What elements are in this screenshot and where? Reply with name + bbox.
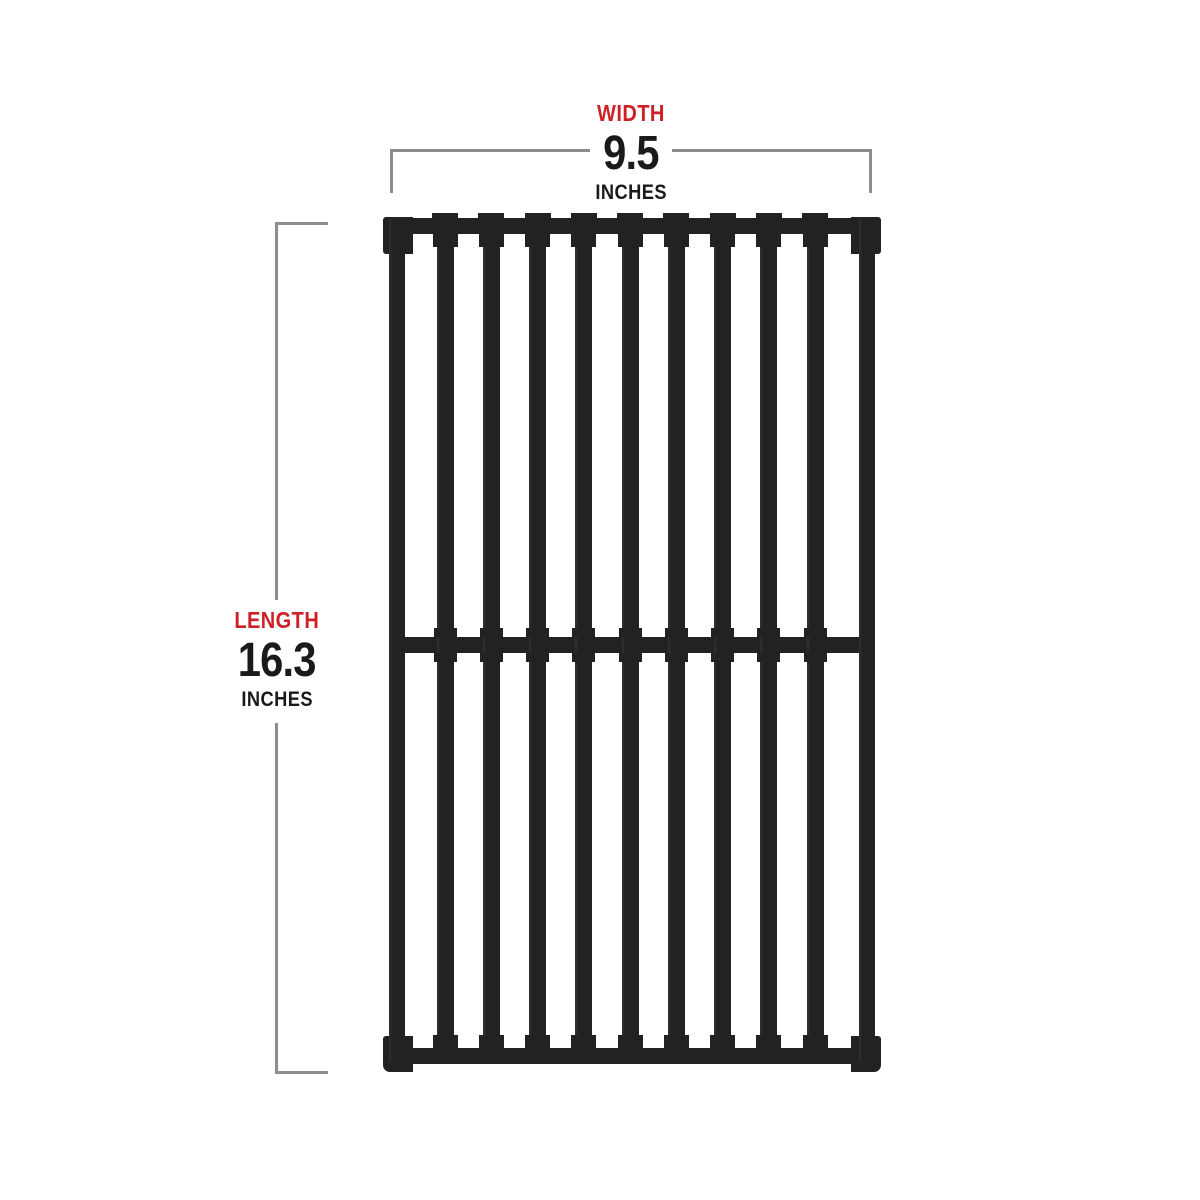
width-value: 9.5 bbox=[590, 130, 672, 178]
grate-bar-mid-cap-upper bbox=[804, 628, 827, 637]
grate-bar-top-tab bbox=[617, 213, 643, 219]
length-value: 16.3 bbox=[223, 637, 330, 685]
grate-bar-mid-cap-upper bbox=[757, 628, 780, 637]
length-value-text: 16.3 bbox=[238, 637, 316, 685]
grate-bar-mid-cap-upper bbox=[665, 628, 688, 637]
grate-bar-top-tab bbox=[756, 213, 782, 219]
width-label: WIDTH 9.5 INCHES bbox=[558, 101, 704, 204]
grate-bar-bottom-cap bbox=[525, 1035, 550, 1048]
grate-bar bbox=[437, 234, 454, 1048]
grate-bar-top-cap bbox=[571, 234, 596, 247]
grate-bar-mid-cap-upper bbox=[619, 628, 642, 637]
grate-bar-mid-cap-lower bbox=[572, 653, 595, 662]
grate-bar-bottom-cap bbox=[710, 1035, 735, 1048]
grate-bar-bottom-cap bbox=[433, 1035, 458, 1048]
grate-bar-top-cap bbox=[710, 234, 735, 247]
grate-bar-mid-cap-lower bbox=[619, 653, 642, 662]
grate-bar-top-cap bbox=[756, 234, 781, 247]
grate-bar-mid-cap-upper bbox=[480, 628, 503, 637]
grate-bar-mid-cap-upper bbox=[526, 628, 549, 637]
grate-bar-top-tab bbox=[571, 213, 597, 219]
grate-frame-bar-left bbox=[389, 218, 405, 1062]
width-unit-text: INCHES bbox=[595, 181, 667, 204]
width-unit: INCHES bbox=[590, 181, 672, 204]
grate-bar-mid-cap-upper bbox=[572, 628, 595, 637]
grate-bar-mid-cap-lower bbox=[757, 653, 780, 662]
grate-bar-bottom-cap bbox=[571, 1035, 596, 1048]
grate-bar-top-cap bbox=[479, 234, 504, 247]
grate-bar-top-tab bbox=[432, 213, 458, 219]
product-dimension-diagram: WIDTH 9.5 INCHES LENGTH 16.3 INCHES bbox=[0, 0, 1200, 1200]
grate-bar-bottom-cap bbox=[803, 1035, 828, 1048]
width-title: WIDTH bbox=[592, 101, 670, 126]
width-value-text: 9.5 bbox=[603, 130, 658, 178]
grate-bar bbox=[483, 234, 500, 1048]
grate-bar-bottom-cap bbox=[756, 1035, 781, 1048]
grate-bar-mid-cap-lower bbox=[434, 653, 457, 662]
length-title-text: LENGTH bbox=[235, 608, 320, 633]
grate-bar-top-tab bbox=[710, 213, 736, 219]
grate-bar bbox=[760, 234, 777, 1048]
grate-bar-top-cap bbox=[803, 234, 828, 247]
grate-bar-mid-cap-lower bbox=[711, 653, 734, 662]
grate-bar-bottom-cap bbox=[479, 1035, 504, 1048]
length-unit: INCHES bbox=[236, 688, 318, 711]
grate-bar-top-tab bbox=[663, 213, 689, 219]
grate-bar-top-tab bbox=[802, 213, 828, 219]
grate-bar-top-cap bbox=[433, 234, 458, 247]
grate-bar-top-cap bbox=[664, 234, 689, 247]
grate-bar-top-tab bbox=[478, 213, 504, 219]
grate-bar-mid-cap-upper bbox=[711, 628, 734, 637]
grate-bar-mid-cap-upper bbox=[434, 628, 457, 637]
grate-bar-mid-cap-lower bbox=[526, 653, 549, 662]
grate-bar-top-cap bbox=[525, 234, 550, 247]
grate-bar-mid-cap-lower bbox=[480, 653, 503, 662]
width-title-text: WIDTH bbox=[597, 101, 665, 126]
grate-bar-mid-cap-lower bbox=[804, 653, 827, 662]
grate-bar-top-tab bbox=[525, 213, 551, 219]
length-label: LENGTH 16.3 INCHES bbox=[207, 600, 347, 723]
grate-bar bbox=[529, 234, 546, 1048]
grate-bottom-rail bbox=[386, 1048, 878, 1064]
grate-bar bbox=[668, 234, 685, 1048]
length-title: LENGTH bbox=[228, 608, 326, 633]
grate-top-rail bbox=[386, 218, 878, 234]
grate-frame-bar-right bbox=[859, 218, 875, 1062]
grate-bar bbox=[622, 234, 639, 1048]
grate-bar-mid-cap-lower bbox=[665, 653, 688, 662]
grate-bar-bottom-cap bbox=[664, 1035, 689, 1048]
grate-bar bbox=[807, 234, 824, 1048]
length-unit-text: INCHES bbox=[241, 688, 313, 711]
grate-bar bbox=[575, 234, 592, 1048]
grate-bar bbox=[714, 234, 731, 1048]
grate-bar-top-cap bbox=[618, 234, 643, 247]
grate-bar-bottom-cap bbox=[618, 1035, 643, 1048]
